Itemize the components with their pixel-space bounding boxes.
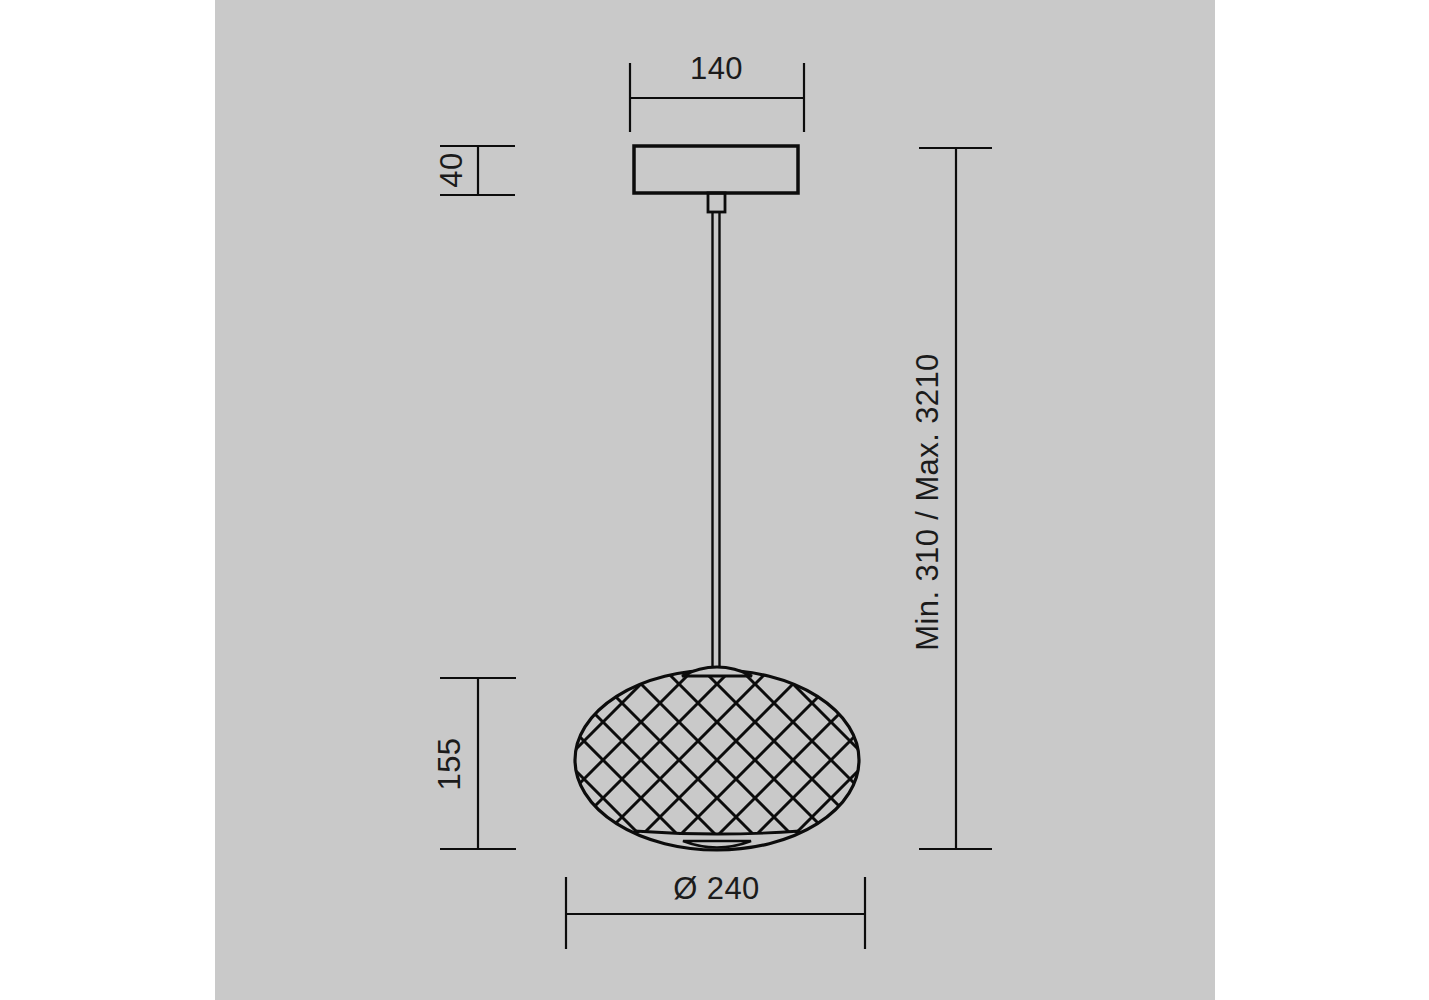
technical-drawing: [215, 0, 1215, 1000]
suspension-cable: [712, 212, 719, 672]
dim-label-shade-diameter: Ø 240: [673, 873, 759, 904]
dim-label-shade-height: 155: [433, 738, 464, 791]
page-background: 140 40 Min. 310 / Max. 3210 155 Ø 240: [0, 0, 1429, 1000]
cable-connector: [708, 193, 725, 212]
shade-bottom-lens: [683, 841, 751, 848]
drawing-canvas: 140 40 Min. 310 / Max. 3210 155 Ø 240: [215, 0, 1215, 1000]
dim-label-suspension-height: Min. 310 / Max. 3210: [911, 353, 942, 651]
dim-label-canopy-width: 140: [690, 53, 743, 84]
shade-top-cap: [682, 667, 752, 676]
canopy-outline: [634, 146, 798, 193]
dim-label-canopy-height: 40: [435, 152, 466, 187]
